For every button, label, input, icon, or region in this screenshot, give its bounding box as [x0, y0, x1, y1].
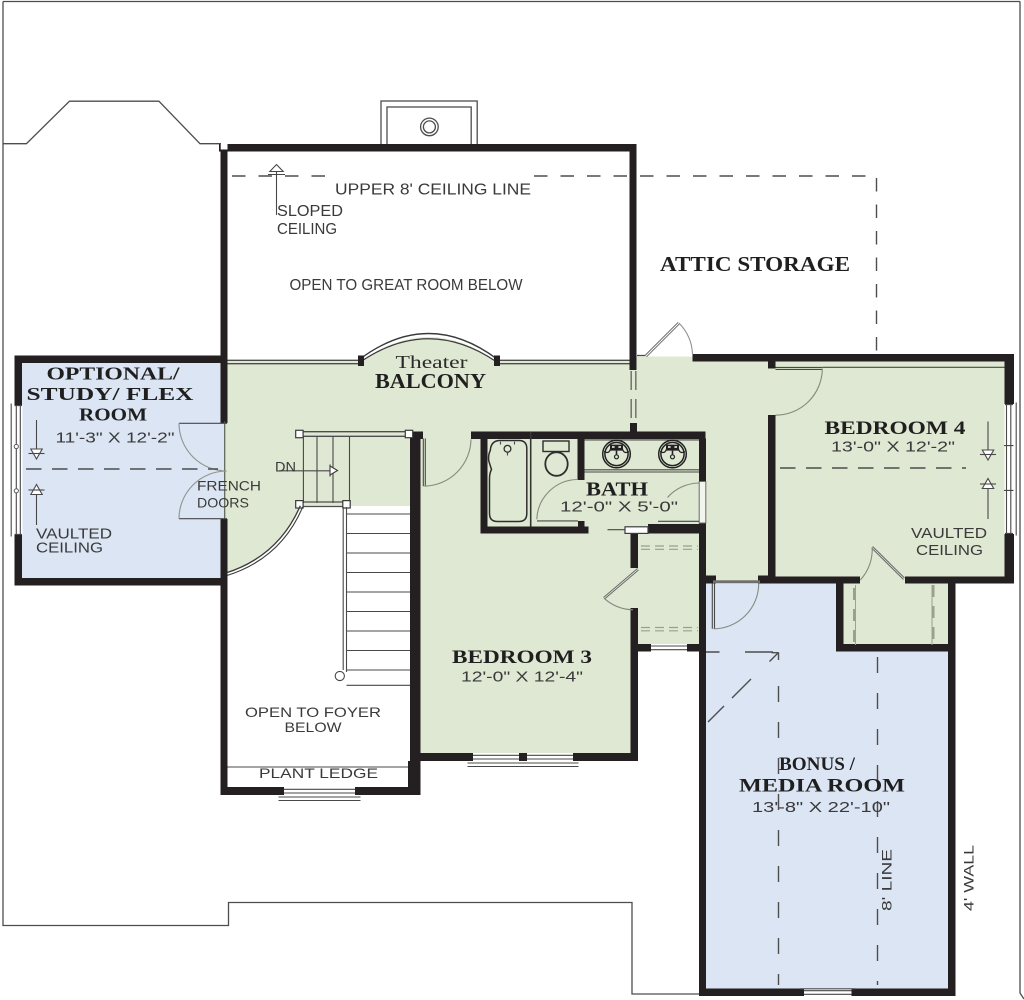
- svg-text:12'-0" X 12'-4": 12'-0" X 12'-4": [461, 669, 583, 686]
- svg-text:OPEN TO GREAT ROOM BELOW: OPEN TO GREAT ROOM BELOW: [290, 277, 524, 294]
- svg-text:4' WALL: 4' WALL: [961, 845, 977, 911]
- svg-text:CEILING: CEILING: [277, 221, 337, 238]
- svg-text:DN: DN: [275, 459, 296, 475]
- svg-text:BEDROOM 4: BEDROOM 4: [825, 418, 967, 439]
- svg-text:ATTIC STORAGE: ATTIC STORAGE: [660, 252, 850, 276]
- svg-text:8' LINE: 8' LINE: [879, 849, 895, 911]
- svg-text:MEDIA ROOM: MEDIA ROOM: [739, 777, 905, 797]
- svg-text:BALCONY: BALCONY: [375, 369, 486, 393]
- svg-text:ROOM: ROOM: [79, 405, 148, 425]
- svg-text:11'-3" X 12'-2": 11'-3" X 12'-2": [56, 430, 175, 447]
- svg-text:BATH: BATH: [586, 480, 648, 501]
- svg-text:OPTIONAL/: OPTIONAL/: [47, 364, 182, 384]
- svg-text:12'-0" X 5'-0": 12'-0" X 5'-0": [560, 499, 678, 516]
- svg-text:STUDY/ FLEX: STUDY/ FLEX: [27, 384, 195, 404]
- svg-text:CEILING: CEILING: [916, 543, 983, 559]
- svg-text:BONUS /: BONUS /: [779, 755, 856, 775]
- svg-text:DOORS: DOORS: [197, 495, 249, 511]
- svg-text:FRENCH: FRENCH: [197, 478, 261, 494]
- svg-text:BELOW: BELOW: [285, 719, 343, 735]
- svg-text:13'-0" X 12'-2": 13'-0" X 12'-2": [831, 439, 955, 456]
- svg-text:VAULTED: VAULTED: [911, 526, 987, 542]
- svg-text:CEILING: CEILING: [36, 541, 103, 557]
- svg-text:13'-8" X 22'-10": 13'-8" X 22'-10": [752, 799, 890, 816]
- svg-text:UPPER 8' CEILING LINE: UPPER 8' CEILING LINE: [335, 182, 531, 199]
- svg-text:BEDROOM 3: BEDROOM 3: [452, 647, 592, 668]
- svg-text:OPEN TO FOYER: OPEN TO FOYER: [245, 704, 381, 720]
- svg-text:PLANT LEDGE: PLANT LEDGE: [259, 765, 378, 781]
- svg-text:SLOPED: SLOPED: [277, 203, 343, 220]
